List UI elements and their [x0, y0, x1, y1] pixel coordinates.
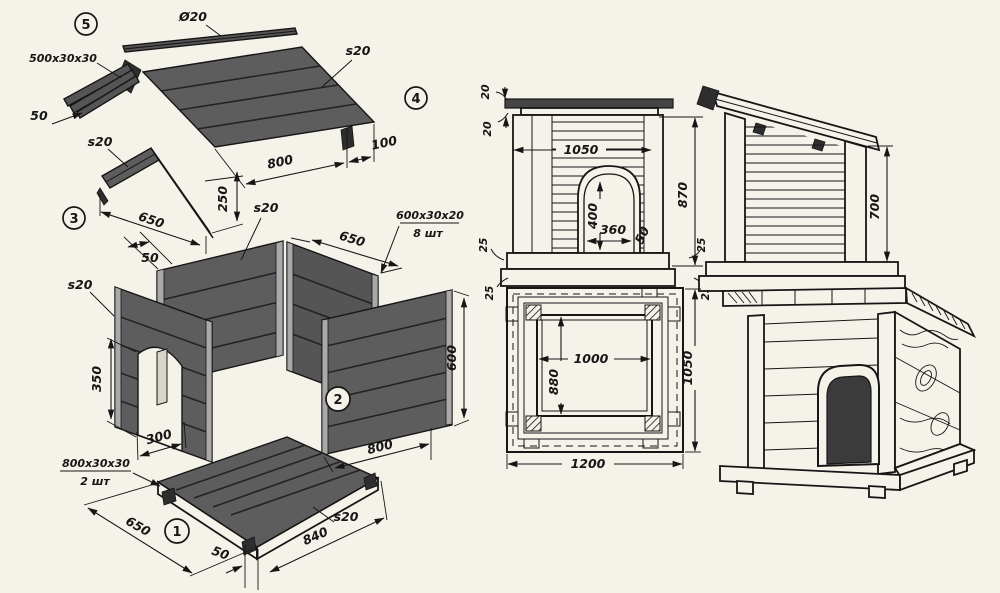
- plan-corner-post: [526, 416, 541, 431]
- side-siding: [743, 127, 847, 253]
- dim-gable-50: 50: [30, 108, 48, 123]
- dim-ridge-bar: 500x30x30: [29, 52, 97, 65]
- persp-roof-fascia: [723, 288, 906, 306]
- dim-fv-25-right-a: 25: [696, 238, 708, 253]
- plan-corner-post: [645, 416, 660, 431]
- dim-door-350: 350: [89, 366, 104, 392]
- dim-pv-1000: 1000: [574, 351, 609, 366]
- part5-number: 5: [81, 18, 90, 33]
- dim-part3-s20: s20: [88, 134, 113, 149]
- dim-fv-400: 400: [585, 203, 600, 230]
- front-view: 20 20 1050 400 360 50 25 25 870 25 25: [478, 84, 712, 300]
- doghouse-blueprint: 5 4 3 2 1 Ø20 500x30x30 s20 50: [0, 0, 1000, 593]
- dim-fv-25-left-a: 25: [478, 238, 490, 253]
- dim-part3-250: 250: [215, 186, 230, 212]
- exploded-view: 5 4 3 2 1 Ø20 500x30x30 s20 50: [29, 9, 469, 590]
- dim-fv-20a: 20: [479, 84, 492, 100]
- inner-post-through-door: [157, 349, 167, 405]
- persp-foot: [737, 481, 753, 494]
- front-roof-slab: [505, 99, 673, 108]
- dim-fv-870: 870: [675, 182, 690, 208]
- part2-number: 2: [333, 393, 342, 408]
- side-view-dimensions: 700: [867, 146, 893, 262]
- side-base-band1: [706, 262, 898, 276]
- front-base-band2: [501, 269, 675, 286]
- ridge-pole: [123, 28, 297, 52]
- plan-view: 1000 880 1200 1050: [506, 288, 702, 471]
- roof-panel: [143, 47, 374, 150]
- dim-pv-1050: 1050: [680, 350, 695, 385]
- persp-foot: [869, 486, 885, 498]
- part3-number: 3: [69, 212, 78, 227]
- dim-sv-700: 700: [867, 194, 882, 220]
- dim-batten-qty: 8 шт: [413, 227, 443, 240]
- dim-batten-size: 600x30x20: [396, 209, 464, 222]
- dim-skid-size: 800x30x30: [62, 457, 130, 470]
- dim-post-50: 50: [141, 250, 159, 265]
- dim-part3-650: 650: [137, 208, 167, 231]
- side-right-trim: [845, 141, 866, 262]
- dim-skid-qty: 2 шт: [80, 475, 110, 488]
- dim-fv-25-left-b: 25: [484, 286, 496, 301]
- plan-corner-post: [526, 305, 541, 320]
- dim-back-650: 650: [338, 228, 368, 250]
- persp-door-dark: [827, 376, 871, 464]
- side-left-trim: [725, 113, 745, 262]
- side-ridge-cap: [697, 86, 719, 110]
- part4-number: 4: [411, 92, 420, 107]
- persp-right-post: [878, 312, 895, 474]
- dim-fv-1050: 1050: [564, 142, 599, 157]
- dim-fv-20b: 20: [481, 121, 494, 137]
- front-roof-trim: [521, 108, 658, 115]
- persp-left-post: [748, 315, 764, 479]
- side-view: 700: [697, 86, 905, 291]
- dim-ridge-dia: Ø20: [178, 9, 207, 24]
- dim-front-s20: s20: [68, 277, 93, 292]
- dim-base-650: 650: [123, 513, 153, 539]
- gable-wedge: [64, 60, 141, 118]
- roof-cleat: [341, 126, 354, 150]
- dim-back-s20: s20: [254, 200, 279, 215]
- persp-side-face: [895, 312, 960, 468]
- dim-pv-1200: 1200: [571, 456, 606, 471]
- dim-roof-800: 800: [266, 151, 295, 171]
- dim-base-s20: s20: [334, 509, 359, 524]
- dim-fv-360: 360: [600, 222, 626, 237]
- base-platform: [158, 437, 378, 559]
- side-roof-cleat: [753, 123, 766, 135]
- plan-corner-post: [645, 305, 660, 320]
- dim-roof-s20: s20: [346, 43, 371, 58]
- dim-side-600: 600: [444, 345, 459, 371]
- part1-number: 1: [172, 525, 181, 540]
- blueprint-canvas: 5 4 3 2 1 Ø20 500x30x30 s20 50: [0, 0, 1000, 593]
- perspective-view: [720, 288, 974, 498]
- front-base-band1: [507, 253, 669, 269]
- dim-pv-880: 880: [546, 369, 561, 395]
